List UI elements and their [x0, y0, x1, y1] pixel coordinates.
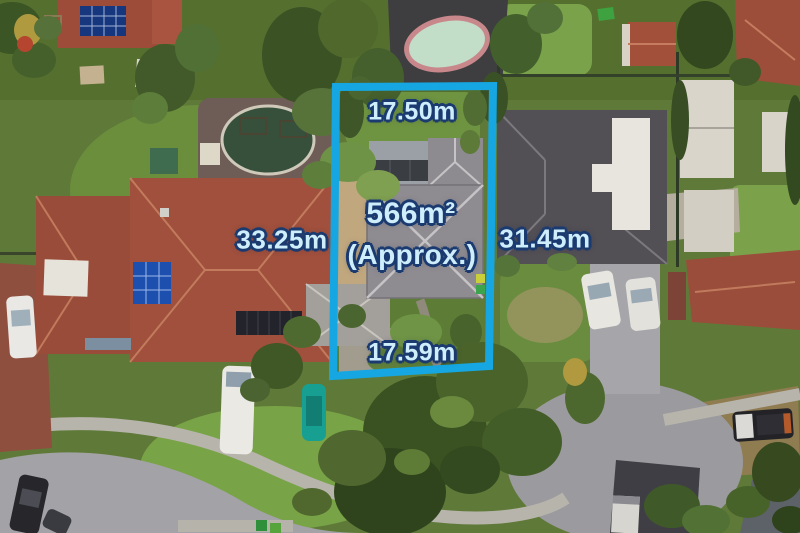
lot-top-width-label: 17.50m — [368, 98, 456, 127]
lot-area-label: 566m² — [366, 197, 455, 231]
lot-area-qualifier-label: (Approx.) — [348, 239, 477, 271]
aerial-photo: 17.50m 566m² (Approx.) 17.59m 33.25m 31.… — [0, 0, 800, 533]
left-property-width-label: 33.25m — [236, 225, 327, 256]
lot-boundary — [333, 86, 493, 376]
right-property-width-label: 31.45m — [499, 224, 590, 255]
lot-bottom-width-label: 17.59m — [368, 339, 456, 368]
